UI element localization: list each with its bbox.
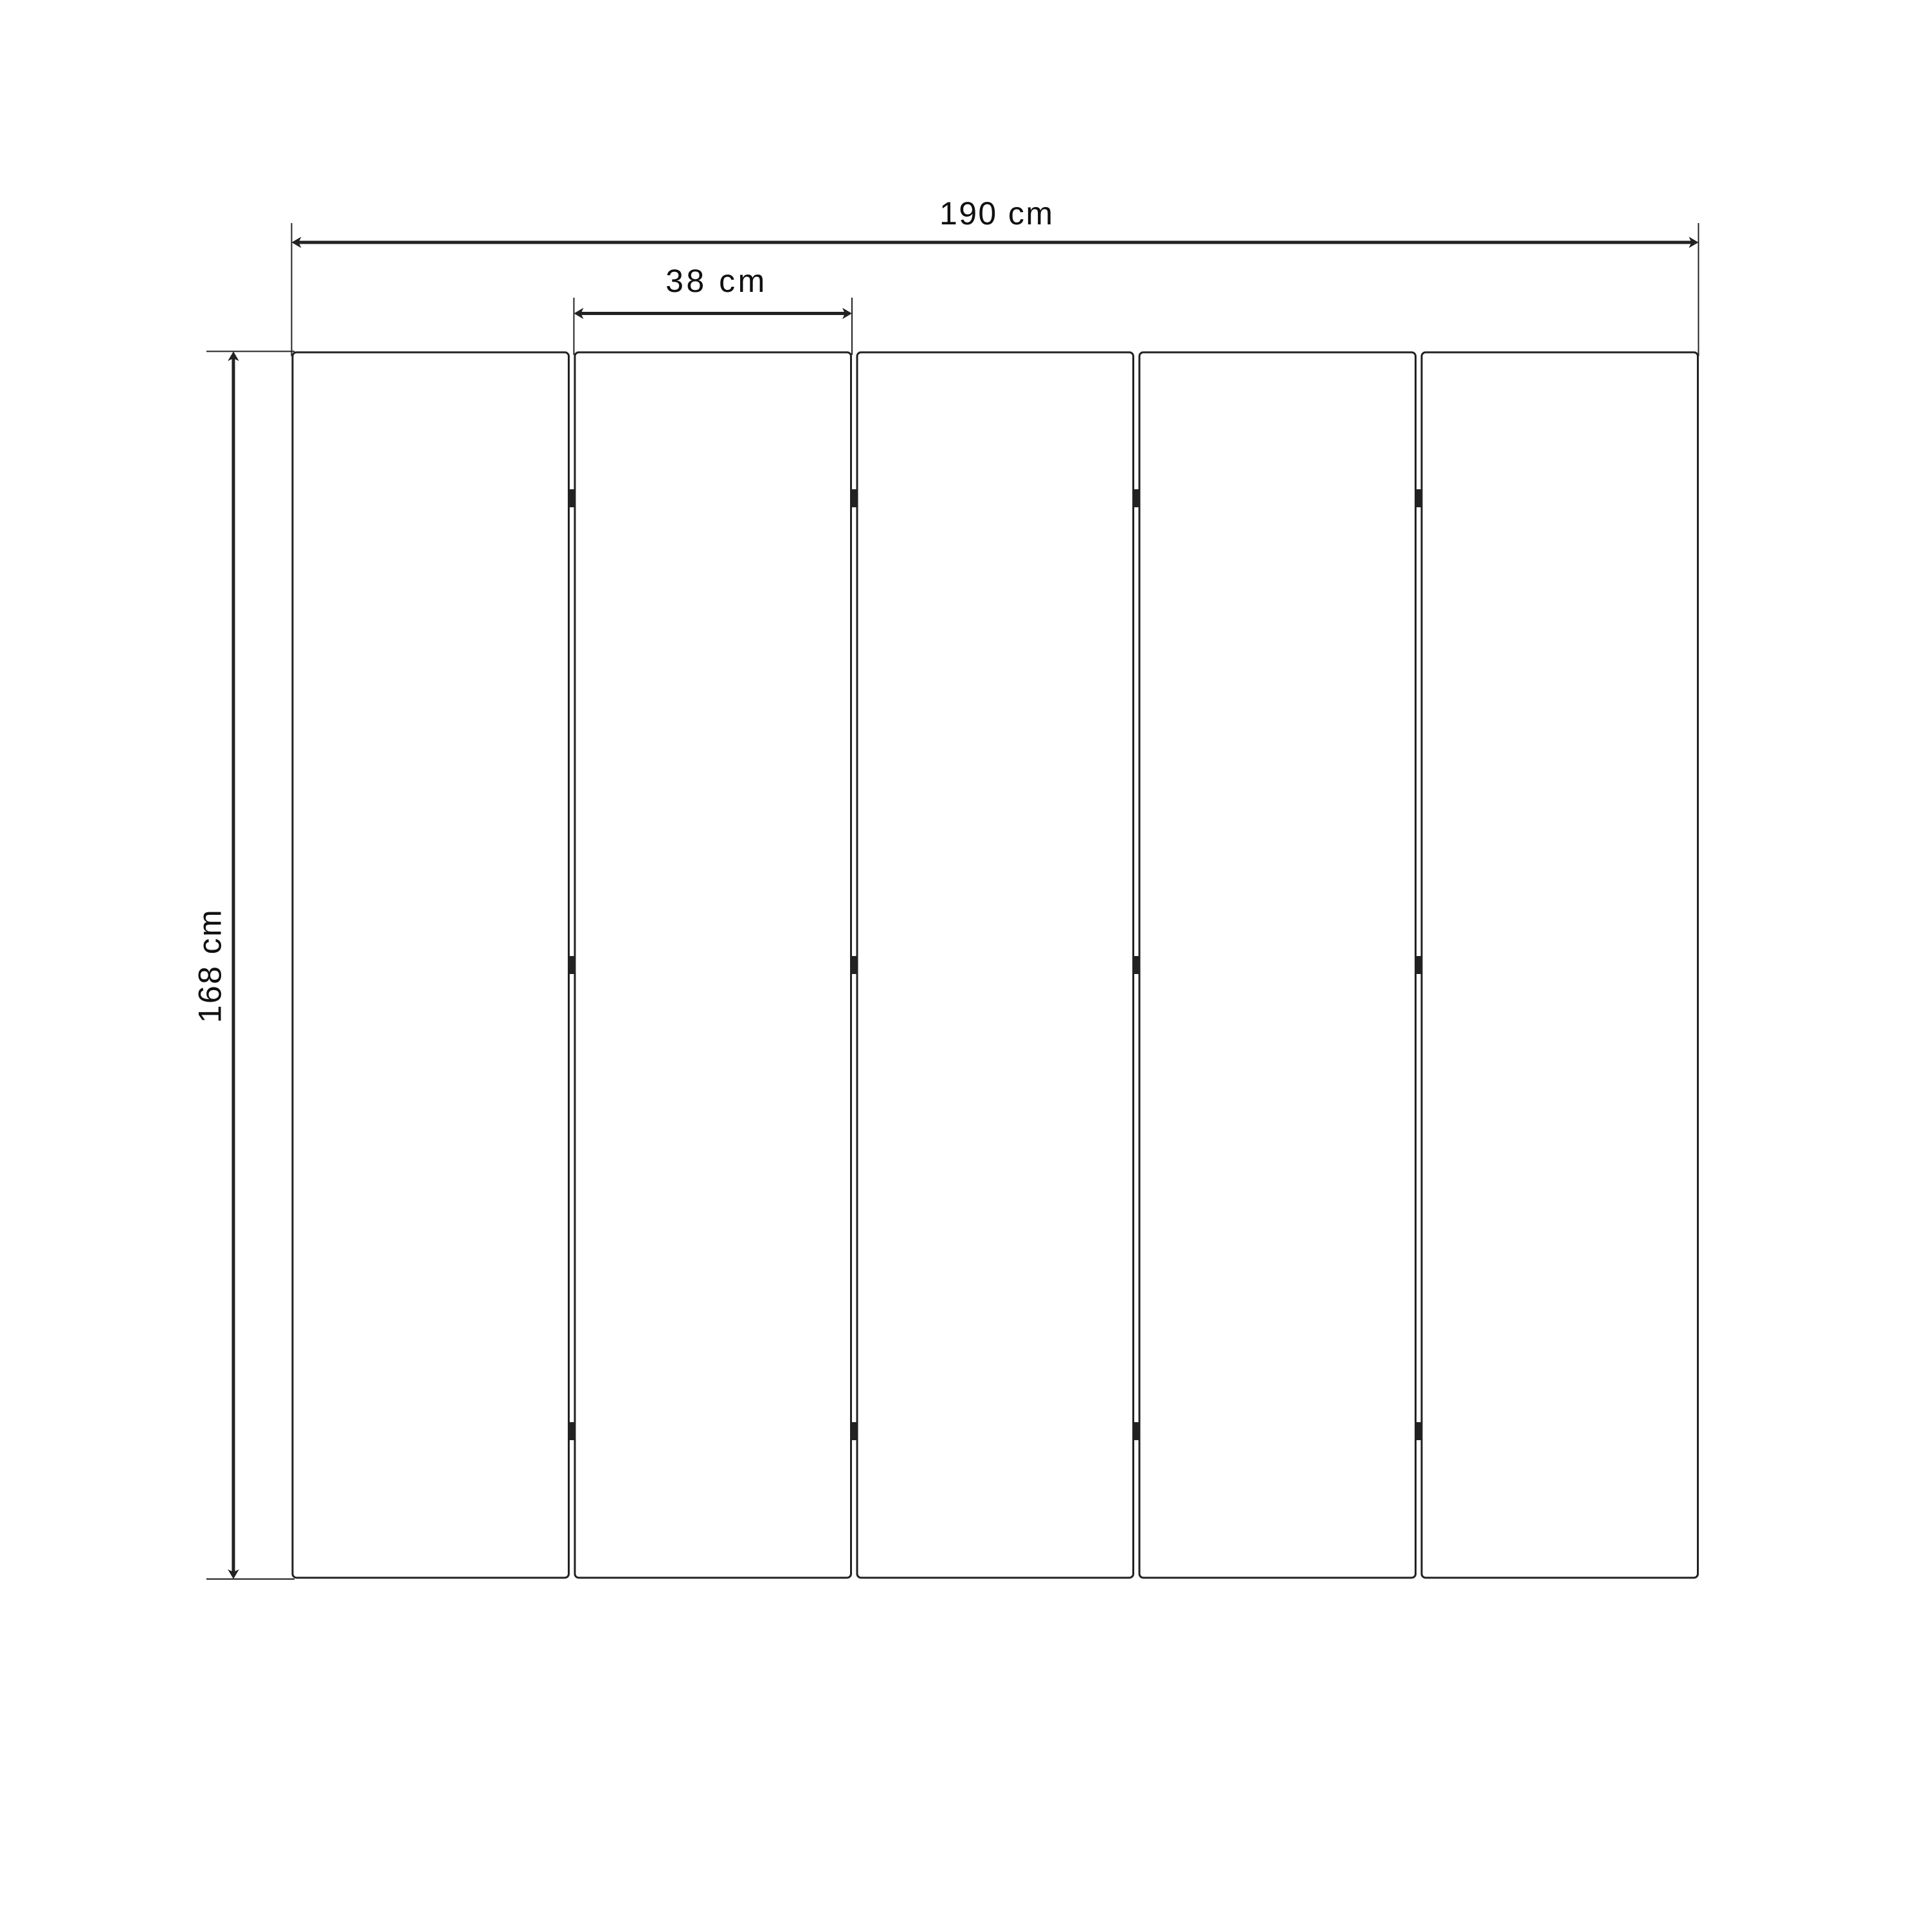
svg-text:168 cm: 168 cm: [192, 908, 228, 1023]
svg-text:38 cm: 38 cm: [666, 263, 768, 299]
svg-text:190 cm: 190 cm: [939, 195, 1054, 231]
